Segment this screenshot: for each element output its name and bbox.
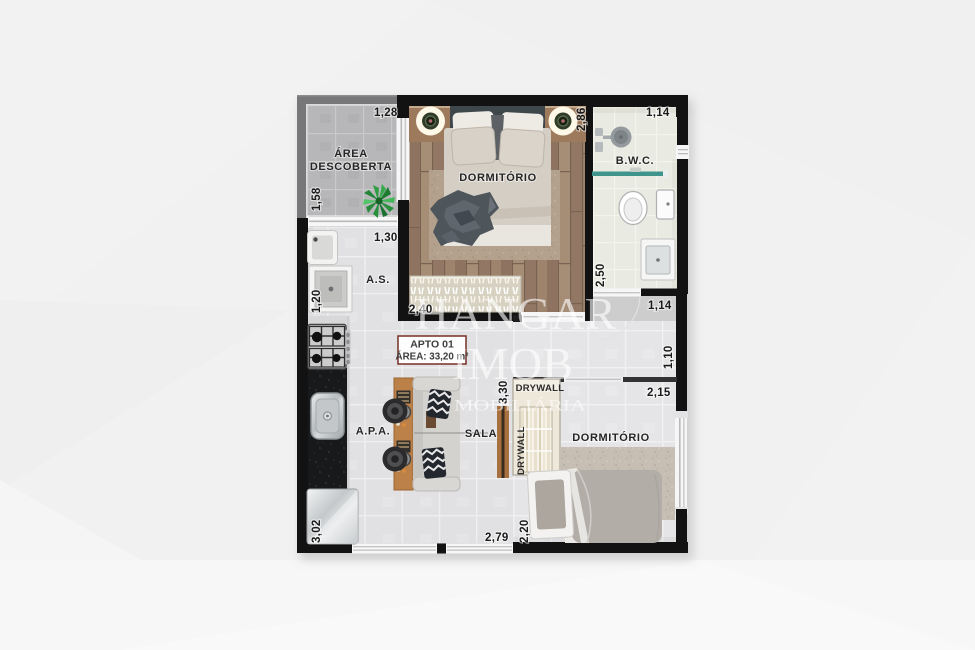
svg-text:DESCOBERTA: DESCOBERTA [310,161,392,173]
svg-text:2,79: 2,79 [485,532,509,544]
svg-text:IMOB: IMOB [452,338,573,389]
svg-text:1,14: 1,14 [648,300,672,312]
svg-text:2,86: 2,86 [576,107,588,131]
svg-text:B.W.C.: B.W.C. [616,155,654,167]
svg-text:2,50: 2,50 [595,263,607,287]
svg-text:1,28: 1,28 [374,107,398,119]
svg-text:A.P.A.: A.P.A. [356,426,391,438]
svg-text:SALA: SALA [465,428,497,440]
svg-text:1,14: 1,14 [646,107,670,119]
svg-text:ÁREA: ÁREA [334,147,368,160]
svg-text:3,02: 3,02 [311,519,323,543]
svg-text:1,58: 1,58 [311,187,323,211]
svg-text:2,20: 2,20 [519,519,531,543]
svg-text:1,30: 1,30 [374,232,398,244]
svg-text:DRYWALL: DRYWALL [516,426,527,475]
svg-text:A.S.: A.S. [366,274,390,286]
svg-text:2,15: 2,15 [647,387,671,399]
svg-text:MOBILIÁRIA: MOBILIÁRIA [454,396,587,415]
svg-text:APTO 01: APTO 01 [410,339,454,351]
svg-text:HANGAR: HANGAR [415,289,616,339]
svg-text:DORMITÓRIO: DORMITÓRIO [459,171,537,184]
svg-text:1,10: 1,10 [663,345,675,369]
svg-text:1,20: 1,20 [311,289,323,313]
svg-text:DORMITÓRIO: DORMITÓRIO [572,431,650,444]
